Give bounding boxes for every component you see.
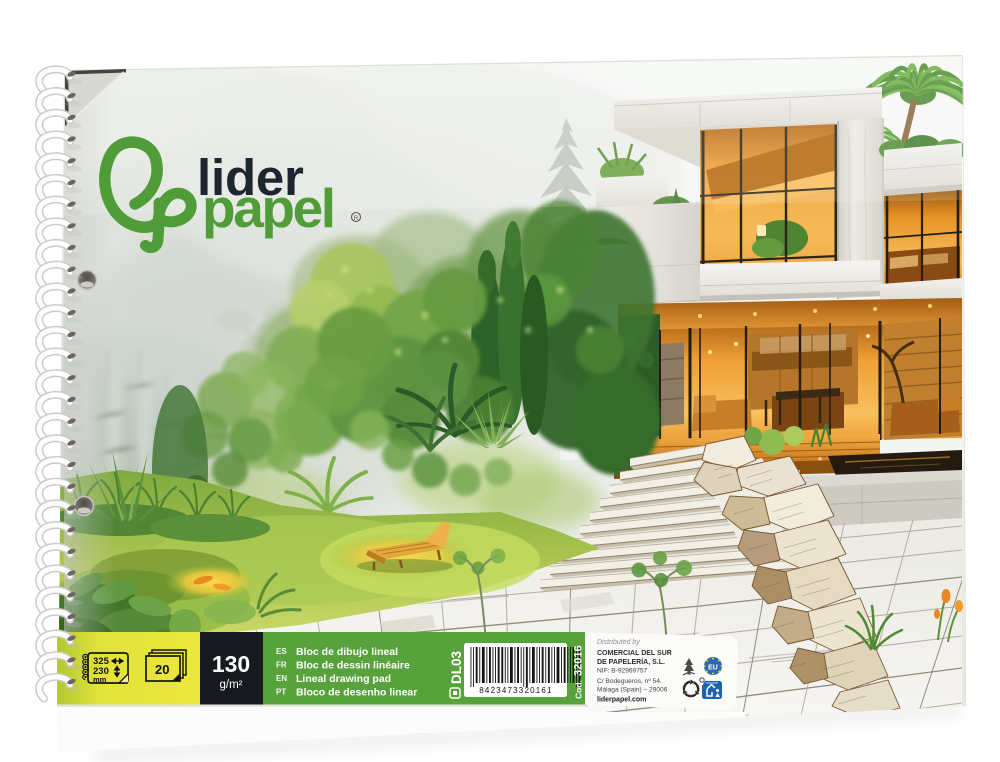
svg-text:COMERCIAL DEL SUR: COMERCIAL DEL SUR	[597, 650, 672, 657]
svg-text:FR: FR	[276, 661, 287, 670]
svg-text:Cod.: Cod.	[574, 680, 584, 699]
svg-text:R: R	[354, 215, 359, 222]
svg-text:liderpapel.com: liderpapel.com	[597, 697, 646, 704]
svg-text:Bloc de dessin linéaire: Bloc de dessin linéaire	[296, 660, 410, 672]
svg-text:DE PAPELERÍA, S.L.: DE PAPELERÍA, S.L.	[597, 657, 665, 666]
svg-text:PT: PT	[276, 688, 286, 697]
svg-text:EN: EN	[276, 674, 287, 683]
svg-text:ES: ES	[276, 647, 287, 656]
svg-text:mm: mm	[93, 675, 107, 684]
svg-text:DL03: DL03	[449, 650, 464, 684]
svg-text:Málaga (Spain) – 29006: Málaga (Spain) – 29006	[597, 687, 668, 694]
svg-text:8423473320161: 8423473320161	[479, 686, 552, 695]
svg-text:NIF: B-92969757: NIF: B-92969757	[597, 668, 648, 675]
svg-text:Bloc de dibujo lineal: Bloc de dibujo lineal	[296, 646, 398, 658]
svg-text:Bloco de desenho linear: Bloco de desenho linear	[296, 687, 417, 699]
svg-text:papel: papel	[202, 177, 334, 239]
svg-text:20: 20	[155, 662, 169, 677]
svg-text:Distributed by: Distributed by	[597, 639, 640, 646]
svg-text:130: 130	[212, 651, 250, 677]
svg-text:EU: EU	[708, 665, 718, 672]
svg-text:Lineal drawing pad: Lineal drawing pad	[296, 673, 391, 685]
svg-text:C/ Bodegueros, nº 54,: C/ Bodegueros, nº 54,	[597, 678, 662, 685]
svg-text:g/m²: g/m²	[220, 679, 243, 691]
svg-text:32016: 32016	[573, 645, 585, 676]
